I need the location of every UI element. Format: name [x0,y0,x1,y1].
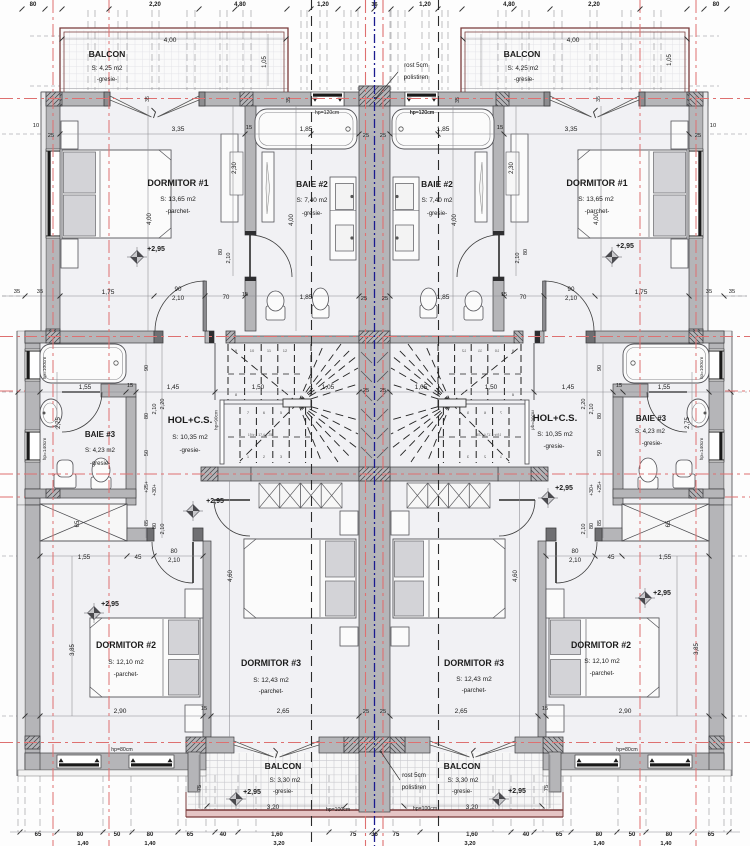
svg-text:+25+: +25+ [144,481,150,493]
svg-text:65: 65 [187,832,194,838]
svg-text:2,75: 2,75 [685,417,691,429]
svg-text:15: 15 [542,706,548,712]
svg-text:2,30: 2,30 [509,162,515,174]
svg-text:-parchet-: -parchet- [462,687,487,694]
svg-text:35: 35 [37,289,43,295]
svg-text:+2,95: +2,95 [101,601,119,608]
svg-text:1,40: 1,40 [144,841,155,846]
svg-text:2,10: 2,10 [581,524,587,535]
svg-text:S: 7,40 m2: S: 7,40 m2 [297,197,328,204]
svg-text:3,85: 3,85 [70,644,76,656]
svg-text:50: 50 [144,450,150,456]
svg-text:+2,95: +2,95 [206,498,224,505]
svg-text:hp=100cm: hp=100cm [413,806,437,812]
svg-text:15: 15 [616,383,622,389]
svg-text:65: 65 [708,832,715,838]
svg-text:4,60: 4,60 [513,570,519,582]
svg-text:80: 80 [30,2,37,8]
svg-text:1,75: 1,75 [102,289,115,296]
svg-text:-gresie-: -gresie- [544,443,565,450]
svg-text:35: 35 [286,97,292,103]
svg-text:1,45: 1,45 [562,384,575,391]
svg-text:80: 80 [597,413,603,419]
svg-text:1,05: 1,05 [322,384,335,391]
svg-text:2,10: 2,10 [168,557,181,564]
svg-text:4,00: 4,00 [567,37,580,44]
svg-text:1,85: 1,85 [437,126,450,133]
svg-text:40: 40 [523,832,530,838]
svg-text:+2,95: +2,95 [653,590,671,597]
svg-text:rost 5cm: rost 5cm [402,772,426,779]
svg-text:1,55: 1,55 [659,554,672,561]
svg-text:+2,95: +2,95 [243,789,261,796]
svg-text:-gresie-: -gresie- [642,441,662,447]
svg-text:S: 4,25 m2: S: 4,25 m2 [92,65,123,72]
svg-text:hp=120cm: hp=120cm [410,110,434,116]
svg-text:1,60: 1,60 [466,832,478,838]
svg-text:hp=100cm: hp=100cm [699,357,705,380]
svg-text:65: 65 [556,832,563,838]
svg-text:1,55: 1,55 [658,384,671,391]
svg-text:35: 35 [145,96,151,102]
svg-text:3,35: 3,35 [172,126,185,133]
svg-text:-gresie-: -gresie- [514,77,534,83]
svg-text:10: 10 [710,123,716,129]
svg-text:80: 80 [152,523,158,529]
svg-text:-gresie-: -gresie- [452,789,472,795]
svg-text:80: 80 [218,249,224,255]
svg-text:polistiren: polistiren [402,784,427,791]
svg-text:80: 80 [713,2,720,8]
svg-text:1,50: 1,50 [485,384,498,391]
svg-text:2,10: 2,10 [226,253,232,264]
svg-text:35: 35 [455,97,461,103]
svg-text:75: 75 [393,832,400,838]
svg-text:19 tr x 17,4 x 25: 19 tr x 17,4 x 25 [248,433,272,437]
svg-text:80: 80 [147,832,154,838]
svg-text:-gresie-: -gresie- [97,77,117,83]
svg-text:1,55: 1,55 [78,554,91,561]
svg-text:2,10: 2,10 [160,524,166,535]
svg-text:2,90: 2,90 [619,708,632,715]
svg-text:-gresie-: -gresie- [180,447,201,454]
svg-text:80: 80 [589,523,595,529]
svg-text:65: 65 [75,520,81,527]
svg-text:80: 80 [171,548,178,555]
svg-text:BAIE #2: BAIE #2 [421,179,453,189]
svg-text:15: 15 [497,125,503,131]
svg-text:hp=100cm: hp=100cm [42,357,48,380]
svg-text:+2,95: +2,95 [508,788,526,795]
svg-text:2,20: 2,20 [160,399,166,410]
svg-text:1,40: 1,40 [660,841,671,846]
svg-text:2,10: 2,10 [152,404,158,415]
svg-text:2,30: 2,30 [232,162,238,174]
svg-text:+2,95: +2,95 [555,485,573,492]
svg-text:S: 10,35 m2: S: 10,35 m2 [172,434,208,441]
svg-text:hp=80cm: hp=80cm [616,747,638,753]
svg-text:3,20: 3,20 [267,804,280,811]
svg-text:80: 80 [523,249,529,255]
svg-text:4,00: 4,00 [289,214,295,226]
svg-text:12: 12 [461,348,466,353]
svg-text:S: 4,23 m2: S: 4,23 m2 [635,428,665,435]
svg-text:2,90: 2,90 [114,708,127,715]
svg-text:4,80: 4,80 [503,2,515,8]
svg-text:90: 90 [144,365,150,371]
svg-text:S: 3,30 m2: S: 3,30 m2 [270,777,301,784]
svg-text:S: 12,43 m2: S: 12,43 m2 [253,677,289,684]
svg-text:1,40: 1,40 [77,841,88,846]
svg-text:DORMITOR #3: DORMITOR #3 [444,658,504,668]
svg-text:65: 65 [666,520,672,527]
svg-text:hp=80cm: hp=80cm [111,747,133,753]
svg-text:45: 45 [608,554,615,561]
svg-text:-parchet-: -parchet- [590,670,615,677]
svg-text:S: 13,65 m2: S: 13,65 m2 [578,196,614,203]
svg-text:2,10: 2,10 [569,557,582,564]
svg-text:DORMITOR #3: DORMITOR #3 [241,658,301,668]
svg-text:80: 80 [596,832,603,838]
svg-text:DORMITOR #2: DORMITOR #2 [96,640,156,650]
svg-text:S: 7,40 m2: S: 7,40 m2 [422,197,453,204]
svg-text:hp=120cm: hp=120cm [315,110,339,116]
svg-text:hp=140cm: hp=140cm [699,438,705,461]
svg-text:15: 15 [127,383,133,389]
svg-text:1,50: 1,50 [252,384,265,391]
svg-text:1,05: 1,05 [262,56,268,68]
svg-text:-parchet-: -parchet- [259,688,284,695]
svg-text:50: 50 [114,832,121,838]
svg-text:1,55: 1,55 [79,384,92,391]
svg-text:36: 36 [371,832,378,838]
svg-text:25: 25 [361,296,367,302]
svg-text:1,85: 1,85 [437,294,450,301]
svg-text:2,65: 2,65 [455,708,468,715]
svg-text:4,80: 4,80 [234,2,246,8]
svg-text:2,75: 2,75 [56,417,62,429]
svg-text:1,05: 1,05 [415,384,428,391]
svg-text:S: 12,10 m2: S: 12,10 m2 [584,658,620,665]
svg-text:25: 25 [363,709,369,715]
svg-text:25: 25 [363,133,369,139]
svg-text:10: 10 [250,348,255,353]
svg-text:S: 12,10 m2: S: 12,10 m2 [108,659,144,666]
svg-text:2,10: 2,10 [565,295,578,302]
svg-text:40: 40 [220,832,227,838]
svg-text:70: 70 [520,295,527,301]
svg-text:-gresie-: -gresie- [273,789,293,795]
svg-text:2,10: 2,10 [589,404,595,415]
svg-text:80: 80 [144,413,150,419]
svg-text:-gresie-: -gresie- [90,461,110,467]
svg-text:BAIE #3: BAIE #3 [636,414,667,423]
svg-text:90: 90 [175,286,182,293]
svg-text:85: 85 [597,520,603,526]
svg-text:4,00: 4,00 [164,37,177,44]
svg-text:S: 4,25 m2: S: 4,25 m2 [508,65,539,72]
svg-text:S: 12,43 m2: S: 12,43 m2 [456,676,492,683]
svg-text:-parchet-: -parchet- [114,671,139,678]
svg-text:50: 50 [629,832,636,838]
svg-text:+30+: +30+ [152,484,158,496]
svg-text:35: 35 [596,96,602,102]
svg-text:90: 90 [568,286,575,293]
svg-text:hp=90cm: hp=90cm [214,410,220,430]
svg-text:S: 13,65 m2: S: 13,65 m2 [160,196,196,203]
svg-text:DORMITOR #1: DORMITOR #1 [566,178,627,188]
svg-text:2,20: 2,20 [588,2,600,8]
svg-text:90: 90 [597,365,603,371]
svg-text:15: 15 [242,292,248,298]
svg-text:25: 25 [363,388,369,394]
svg-text:25: 25 [382,296,388,302]
svg-text:BALCON: BALCON [444,761,481,771]
svg-text:25: 25 [695,133,701,139]
svg-text:DORMITOR #1: DORMITOR #1 [147,178,208,188]
svg-text:DORMITOR #2: DORMITOR #2 [571,640,631,650]
svg-text:75: 75 [197,785,203,791]
svg-text:3,85: 3,85 [694,643,700,655]
svg-text:+2,95: +2,95 [147,246,165,253]
svg-text:25: 25 [380,709,386,715]
svg-text:1,75: 1,75 [635,289,648,296]
svg-text:1,20: 1,20 [419,2,431,8]
svg-text:3,35: 3,35 [565,126,578,133]
svg-text:25: 25 [48,133,54,139]
svg-text:15: 15 [501,292,507,298]
svg-text:HOL+C.S.: HOL+C.S. [168,415,213,426]
svg-text:-gresie-: -gresie- [302,211,322,217]
svg-text:3,20: 3,20 [466,804,479,811]
svg-text:BAIE #2: BAIE #2 [296,179,328,189]
svg-text:1,85: 1,85 [300,126,313,133]
svg-text:1,40: 1,40 [593,841,604,846]
svg-text:3,20: 3,20 [273,841,284,846]
svg-text:S: 4,23 m2: S: 4,23 m2 [85,447,115,454]
svg-text:BALCON: BALCON [504,49,541,59]
svg-text:HOL+C.S.: HOL+C.S. [533,413,578,424]
svg-text:+2,95: +2,95 [616,243,634,250]
svg-text:15: 15 [246,125,252,131]
svg-text:75: 75 [350,832,357,838]
svg-text:1,45: 1,45 [167,384,180,391]
svg-text:-parchet-: -parchet- [166,208,191,215]
svg-text:25: 25 [380,133,386,139]
svg-text:1,05: 1,05 [667,54,673,66]
svg-text:1,85: 1,85 [300,294,313,301]
svg-text:hp=140cm: hp=140cm [42,438,48,461]
svg-text:19 tr x 17,4 x 25: 19 tr x 17,4 x 25 [477,433,501,437]
svg-text:BALCON: BALCON [89,49,126,59]
svg-text:35: 35 [14,289,20,295]
svg-text:1,20: 1,20 [317,2,329,8]
svg-text:65: 65 [35,832,42,838]
svg-text:80: 80 [572,548,579,555]
svg-text:12: 12 [283,348,288,353]
svg-text:4,60: 4,60 [228,570,234,582]
svg-text:75: 75 [544,785,550,791]
svg-text:35: 35 [706,289,712,295]
svg-text:BAIE #3: BAIE #3 [85,430,116,439]
svg-text:-gresie-: -gresie- [427,211,447,217]
svg-text:35: 35 [729,289,735,295]
svg-text:45: 45 [135,554,142,561]
svg-text:+25+: +25+ [597,481,603,493]
svg-text:15: 15 [201,706,207,712]
svg-text:S: 10,35 m2: S: 10,35 m2 [537,431,573,438]
svg-text:80: 80 [77,832,84,838]
svg-text:4,00: 4,00 [594,213,600,225]
svg-text:85: 85 [144,520,150,526]
svg-text:36: 36 [371,2,377,8]
svg-text:1,60: 1,60 [271,832,283,838]
svg-text:4,00: 4,00 [147,213,153,225]
svg-text:2,20: 2,20 [149,2,161,8]
svg-text:70: 70 [223,295,230,301]
svg-text:hp=100cm: hp=100cm [326,807,350,813]
svg-text:10: 10 [494,348,499,353]
svg-text:S: 3,30 m2: S: 3,30 m2 [448,777,479,784]
svg-text:2,10: 2,10 [172,295,185,302]
svg-text:80: 80 [666,832,673,838]
svg-text:2,20: 2,20 [581,399,587,410]
svg-text:+30+: +30+ [589,484,595,496]
svg-text:rost 5cm: rost 5cm [404,62,428,69]
svg-text:2,65: 2,65 [277,708,290,715]
svg-text:polistiren: polistiren [404,74,429,81]
svg-text:BALCON: BALCON [265,761,302,771]
svg-text:2,10: 2,10 [515,253,521,264]
svg-text:50: 50 [597,450,603,456]
svg-text:4,00: 4,00 [452,214,458,226]
svg-text:25: 25 [380,388,386,394]
svg-text:10: 10 [33,123,39,129]
svg-text:3,20: 3,20 [464,841,475,846]
